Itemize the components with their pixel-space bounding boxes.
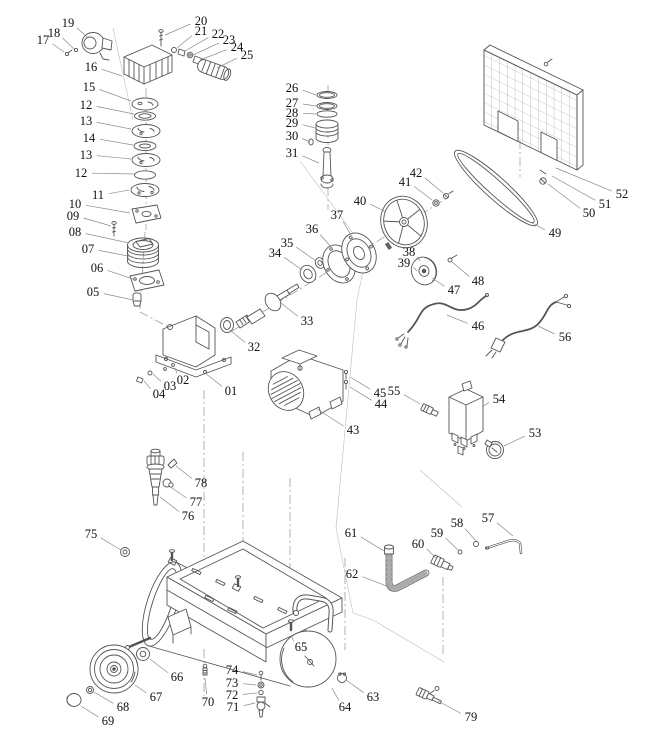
leader-line-55 xyxy=(404,395,420,404)
v-belt xyxy=(448,143,544,233)
clip-63 xyxy=(338,673,347,683)
pressure-switch xyxy=(449,381,483,455)
part-label-37: 37 xyxy=(331,208,344,222)
part-label-25: 25 xyxy=(241,48,254,62)
part-label-15: 15 xyxy=(83,80,96,94)
leader-line-64 xyxy=(332,688,339,700)
fitting-05 xyxy=(133,293,141,306)
leader-line-35 xyxy=(296,247,316,261)
connector-55 xyxy=(421,404,439,418)
motor-bolts xyxy=(344,370,347,389)
leader-line-36 xyxy=(320,235,332,249)
part-label-18: 18 xyxy=(48,26,61,40)
part-label-03: 03 xyxy=(164,379,177,393)
head-bolt xyxy=(159,30,163,46)
part-label-61: 61 xyxy=(345,526,358,540)
part-label-21: 21 xyxy=(195,24,208,38)
part-label-32: 32 xyxy=(248,340,261,354)
part-label-65: 65 xyxy=(295,640,308,654)
part-label-07: 07 xyxy=(82,242,95,256)
part-label-64: 64 xyxy=(339,700,352,714)
leader-line-77 xyxy=(172,488,187,498)
leader-line-50 xyxy=(548,184,580,208)
part-label-13: 13 xyxy=(80,114,93,128)
part-label-11: 11 xyxy=(92,188,104,202)
safety-valve xyxy=(147,449,173,505)
part-label-50: 50 xyxy=(583,206,596,220)
leader-line-09 xyxy=(84,218,111,226)
part-label-31: 31 xyxy=(286,146,299,160)
wheel xyxy=(90,645,138,693)
diagram-canvas: 0102030405060708091011121314131215161718… xyxy=(0,0,649,755)
leader-line-14 xyxy=(100,139,133,145)
part-label-68: 68 xyxy=(117,700,130,714)
leader-line-37 xyxy=(343,222,352,237)
leader-line-05 xyxy=(104,294,133,300)
leader-line-79 xyxy=(438,701,461,714)
part-label-29: 29 xyxy=(286,116,299,130)
part-label-33: 33 xyxy=(301,314,314,328)
part-label-72: 72 xyxy=(226,688,239,702)
leader-line-25 xyxy=(217,58,237,68)
bearing xyxy=(297,262,319,285)
axle-nut xyxy=(87,687,94,694)
part-label-42: 42 xyxy=(410,166,423,180)
leader-line-20 xyxy=(165,24,191,35)
part-label-13: 13 xyxy=(80,148,93,162)
outlet-pipe-group xyxy=(385,540,522,588)
part-label-53: 53 xyxy=(529,426,542,440)
axle-washer xyxy=(137,648,150,661)
flywheel-washer xyxy=(433,200,439,206)
crankcase xyxy=(156,316,231,377)
muffler xyxy=(196,58,232,82)
shaft-key xyxy=(386,243,392,250)
tank-end-cap xyxy=(280,631,336,687)
leader-line-13 xyxy=(97,122,131,129)
nut-75 xyxy=(121,548,130,557)
leader-line-18 xyxy=(63,38,74,49)
leader-line-24 xyxy=(200,50,227,60)
group-boundary-line xyxy=(353,613,373,620)
group-boundary-line xyxy=(373,620,444,662)
part-label-26: 26 xyxy=(286,81,299,95)
part-label-39: 39 xyxy=(398,256,411,270)
cylinder xyxy=(128,238,159,268)
elbow-fitting-79 xyxy=(416,687,443,706)
part-label-63: 63 xyxy=(367,690,380,704)
power-cord-56 xyxy=(486,294,571,358)
part-label-46: 46 xyxy=(472,319,485,333)
leader-line-78 xyxy=(176,466,192,479)
part-label-55: 55 xyxy=(388,384,401,398)
part-label-45: 45 xyxy=(374,386,387,400)
leader-line-48 xyxy=(452,262,469,276)
part-label-71: 71 xyxy=(227,700,240,714)
leader-line-34 xyxy=(284,257,302,270)
part-label-60: 60 xyxy=(412,537,425,551)
part-label-56: 56 xyxy=(559,330,572,344)
leader-line-59 xyxy=(446,538,459,550)
leader-line-29 xyxy=(303,125,315,128)
screw-17 xyxy=(65,52,68,55)
leader-line-51 xyxy=(552,176,595,200)
cylinder-head xyxy=(124,45,172,84)
leader-line-27 xyxy=(303,104,316,106)
leader-line-17 xyxy=(53,44,64,52)
part-label-76: 76 xyxy=(182,509,195,523)
part-label-59: 59 xyxy=(431,526,444,540)
part-label-16: 16 xyxy=(85,60,98,74)
part-label-79: 79 xyxy=(465,710,478,724)
leader-line-71 xyxy=(244,703,255,706)
part-label-48: 48 xyxy=(472,274,485,288)
leader-line-63 xyxy=(346,680,364,693)
part-label-58: 58 xyxy=(451,516,464,530)
base-gasket xyxy=(130,270,164,291)
part-label-70: 70 xyxy=(202,695,215,709)
part-label-09: 09 xyxy=(67,209,80,223)
nut-59 xyxy=(458,550,462,554)
leader-line-72 xyxy=(243,693,257,694)
leader-line-23 xyxy=(193,43,219,55)
part-label-54: 54 xyxy=(493,392,506,406)
leader-line-57 xyxy=(497,523,513,536)
leader-line-19 xyxy=(77,28,87,37)
leader-line-26 xyxy=(303,90,316,95)
leader-line-73 xyxy=(243,684,256,685)
valve-cone xyxy=(168,459,177,468)
leader-line-04 xyxy=(144,381,151,389)
part-label-67: 67 xyxy=(150,690,163,704)
part-label-74: 74 xyxy=(226,663,239,677)
pulley-bolt xyxy=(448,255,457,262)
part-label-57: 57 xyxy=(482,511,495,525)
part-label-10: 10 xyxy=(69,197,82,211)
part-label-49: 49 xyxy=(549,226,562,240)
leader-line-53 xyxy=(504,436,525,446)
part-label-51: 51 xyxy=(599,197,612,211)
leader-line-45 xyxy=(350,377,370,389)
stud-bolt xyxy=(112,222,116,237)
leader-line-49 xyxy=(532,223,545,230)
exhaust-hose xyxy=(385,545,427,588)
part-label-01: 01 xyxy=(225,384,238,398)
leader-line-03 xyxy=(153,374,161,381)
motor xyxy=(262,350,343,419)
leader-line-32 xyxy=(230,330,245,342)
leader-line-10 xyxy=(86,205,130,213)
part-label-77: 77 xyxy=(190,495,203,509)
leader-line-12 xyxy=(97,107,134,115)
screw-18 xyxy=(74,48,77,51)
leader-line-41 xyxy=(414,186,432,200)
part-label-66: 66 xyxy=(171,670,184,684)
part-label-05: 05 xyxy=(87,285,100,299)
washer-58 xyxy=(474,542,479,547)
part-label-75: 75 xyxy=(85,527,98,541)
air-filter xyxy=(65,33,112,61)
part-label-36: 36 xyxy=(306,222,319,236)
leader-line-61 xyxy=(361,537,384,551)
leader-line-16 xyxy=(102,69,122,76)
leader-line-69 xyxy=(81,706,98,717)
flywheel-bolt xyxy=(443,191,453,199)
leader-line-43 xyxy=(317,409,344,426)
piston-rings xyxy=(317,92,337,118)
part-label-78: 78 xyxy=(195,476,208,490)
leader-line-62 xyxy=(362,577,389,587)
part-label-19: 19 xyxy=(62,16,75,30)
leader-line-11 xyxy=(109,190,129,194)
belt-guard xyxy=(484,45,583,184)
leader-line-66 xyxy=(150,659,168,673)
oil-seal xyxy=(221,318,234,333)
part-label-69: 69 xyxy=(102,714,115,728)
parts-layer xyxy=(65,30,583,717)
part-label-08: 08 xyxy=(69,225,82,239)
leader-line-31 xyxy=(302,156,319,163)
leader-line-13 xyxy=(97,156,131,159)
part-label-62: 62 xyxy=(346,567,359,581)
leader-line-42 xyxy=(425,178,443,193)
leader-line-56 xyxy=(538,326,555,334)
leader-line-15 xyxy=(99,90,131,102)
part-label-02: 02 xyxy=(177,373,190,387)
leader-line-22 xyxy=(185,38,208,51)
leader-line-47 xyxy=(432,278,444,286)
valve-plate-stack xyxy=(131,98,161,223)
leader-line-58 xyxy=(465,529,476,542)
leader-line-67 xyxy=(135,685,146,693)
hub-cap xyxy=(67,694,81,707)
guard-screw xyxy=(544,62,548,66)
part-label-04: 04 xyxy=(153,387,166,401)
connecting-rod xyxy=(321,148,333,189)
leader-line-12 xyxy=(92,173,134,174)
leader-line-76 xyxy=(160,497,179,512)
leader-line-60 xyxy=(427,549,436,558)
part-label-12: 12 xyxy=(75,166,88,180)
leader-line-46 xyxy=(447,315,468,323)
group-boundary-line xyxy=(336,300,357,528)
part-label-12: 12 xyxy=(80,98,93,112)
leader-line-52 xyxy=(556,168,612,191)
crankshaft xyxy=(236,284,299,328)
outlet-fittings xyxy=(172,48,204,66)
group-boundary-line xyxy=(420,470,462,507)
part-label-73: 73 xyxy=(226,676,239,690)
leader-line-68 xyxy=(94,692,113,703)
part-label-35: 35 xyxy=(281,236,294,250)
part-label-06: 06 xyxy=(91,261,104,275)
part-label-43: 43 xyxy=(347,423,360,437)
leader-line-75 xyxy=(101,538,121,550)
leader-line-44 xyxy=(350,387,371,400)
leader-line-21 xyxy=(177,36,192,48)
exploded-parts-diagram: 0102030405060708091011121314131215161718… xyxy=(0,0,649,755)
part-label-40: 40 xyxy=(354,194,367,208)
part-label-52: 52 xyxy=(616,187,629,201)
leader-line-70 xyxy=(205,678,207,694)
axle-bolt-70 xyxy=(203,664,207,675)
leader-line-01 xyxy=(205,373,222,386)
part-label-14: 14 xyxy=(83,131,96,145)
leader-line-33 xyxy=(281,303,298,316)
check-valve-60 xyxy=(431,555,455,572)
part-label-30: 30 xyxy=(286,129,299,143)
part-label-47: 47 xyxy=(448,283,461,297)
pressure-gauge xyxy=(485,440,504,459)
piston xyxy=(316,120,338,143)
leader-line-28 xyxy=(303,113,316,114)
